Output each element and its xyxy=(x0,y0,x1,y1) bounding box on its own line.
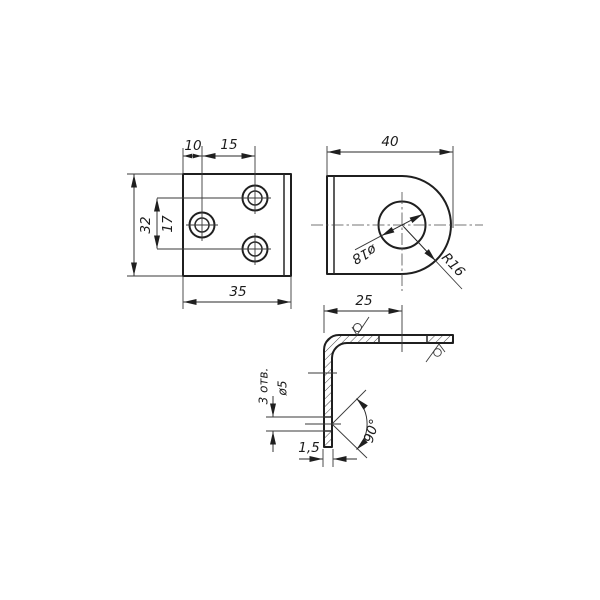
dim-label-15: 15 xyxy=(220,137,237,153)
surface-roughness-icon xyxy=(426,344,445,362)
hatch-flange-end xyxy=(427,335,453,343)
angle-ray xyxy=(332,390,366,424)
front-view: 10 15 32 17 35 xyxy=(127,137,291,309)
hole-bottom-right xyxy=(157,233,271,265)
dim-label-17: 17 xyxy=(160,215,176,233)
dimension-radius-16: R16 xyxy=(402,225,468,289)
dim-label-r16: R16 xyxy=(438,250,468,280)
dimension-lug-width: 40 xyxy=(327,134,453,228)
hole-middle xyxy=(186,146,218,241)
technical-drawing-canvas: 10 15 32 17 35 xyxy=(0,0,600,600)
dim-label-40: 40 xyxy=(381,134,398,150)
dim-label-10: 10 xyxy=(184,138,201,154)
dimension-hole-offset-x: 10 xyxy=(183,138,202,174)
dim-label-25: 25 xyxy=(355,293,372,309)
side-view: 40 ø18 R16 xyxy=(311,134,483,291)
dimension-hole-pitch-y: 17 xyxy=(157,199,176,249)
dim-label-35: 35 xyxy=(229,284,246,300)
dim-label-32: 32 xyxy=(138,216,154,233)
dimension-small-holes: ø5 3 отв. xyxy=(257,368,332,452)
engineering-drawing: 10 15 32 17 35 xyxy=(0,0,600,600)
dimension-plate-width: 35 xyxy=(183,276,291,309)
dimension-hole-pitch-x: 15 xyxy=(203,137,255,156)
dim-label-90deg: 90° xyxy=(361,417,384,445)
dim-label-1-5: 1,5 xyxy=(298,440,319,456)
dim-label-dia5: ø5 xyxy=(276,381,290,397)
dim-label-hole-count: 3 отв. xyxy=(257,368,271,405)
section-view: 25 ø5 3 отв. 90° 1,5 xyxy=(257,293,454,467)
surface-roughness-icon xyxy=(352,317,369,335)
hatch-leg-bottom xyxy=(324,431,332,447)
